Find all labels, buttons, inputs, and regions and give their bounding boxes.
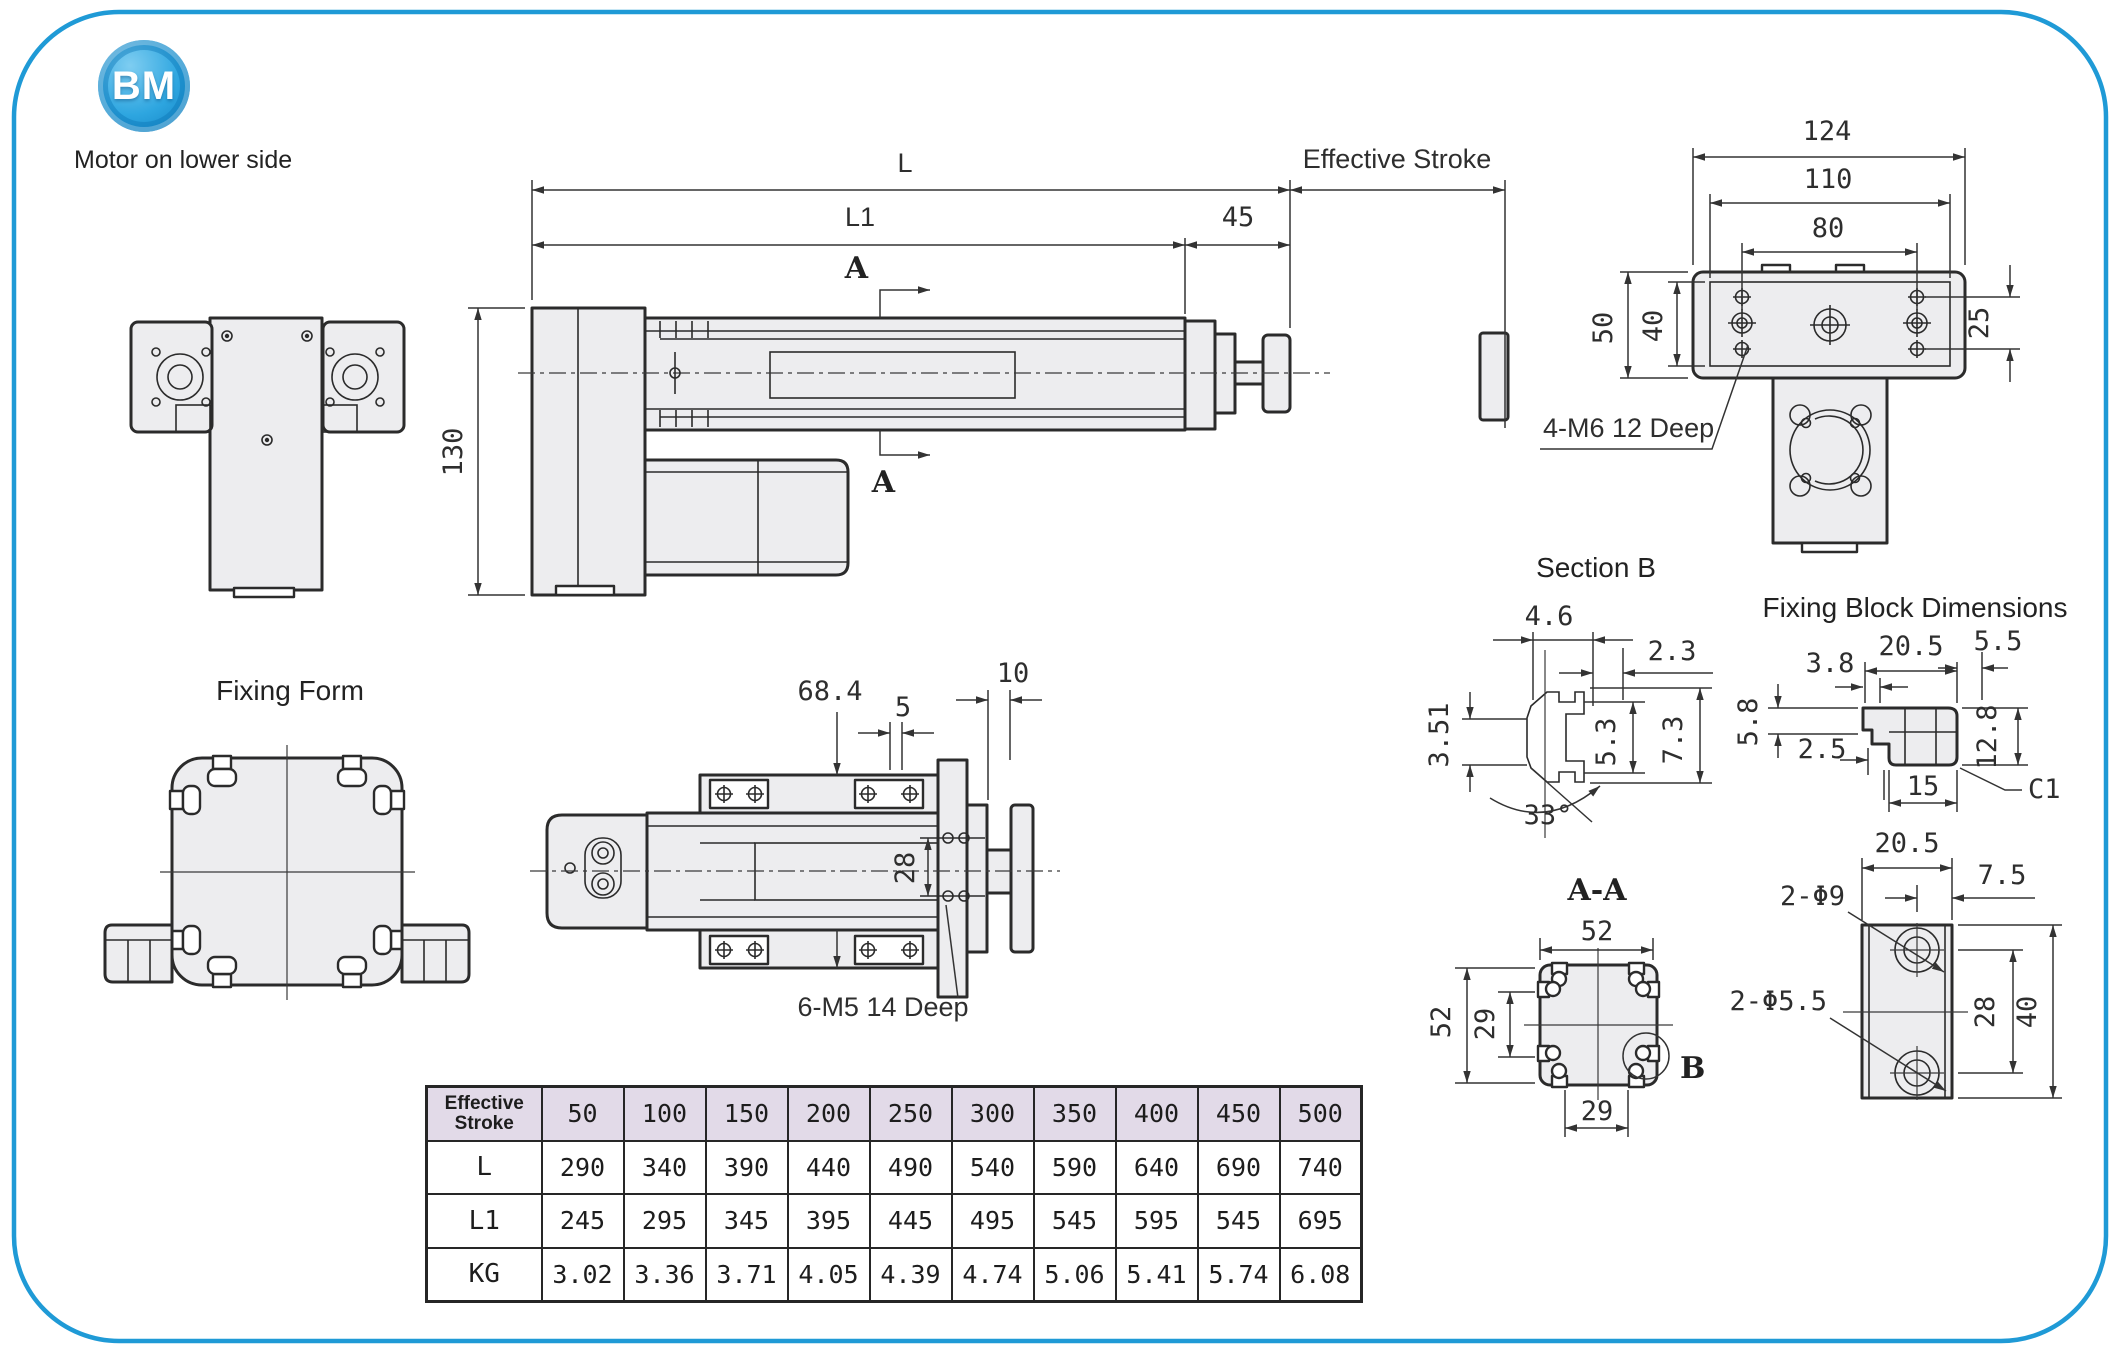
table-cell: 695	[1280, 1194, 1362, 1248]
bm-logo-text: BM	[112, 64, 176, 109]
table-cell: 345	[706, 1194, 788, 1248]
table-header-stroke: 100	[624, 1087, 706, 1141]
table-cell: 245	[542, 1194, 624, 1248]
table-cell: 740	[1280, 1141, 1362, 1194]
table-header-stroke: 150	[706, 1087, 788, 1141]
table-header-stroke: 400	[1116, 1087, 1198, 1141]
front-view-drawing	[131, 318, 404, 597]
dim-3-51: 3.51	[1424, 702, 1455, 767]
effective-stroke-label: Effective Stroke	[1303, 144, 1492, 174]
table-cell: 295	[624, 1194, 706, 1248]
dim-80: 80	[1812, 213, 1845, 244]
table-header-stroke: 50	[542, 1087, 624, 1141]
table-cell: 595	[1116, 1194, 1198, 1248]
fixing-block-profile-drawing: Fixing Block Dimensions 20.5 3.8 5.5 5.8…	[1733, 592, 2068, 812]
table-cell: 490	[870, 1141, 952, 1194]
table-cell: 4.39	[870, 1248, 952, 1302]
dim-7-3: 7.3	[1658, 716, 1689, 765]
table-row-L: L 290 340 390 440 490 540 590 640 690 74…	[427, 1141, 1362, 1194]
end-view-drawing: 124 110 80 50 40 25 4-M6 12 Deep	[1540, 116, 2020, 552]
fixing-block-face-drawing: 20.5 7.5 2-Φ9 2-Φ5.5 28 40	[1729, 828, 2062, 1100]
dim-7-5: 7.5	[1978, 860, 2027, 891]
chamfer-c1: C1	[2028, 774, 2061, 805]
motor-side-caption: Motor on lower side	[74, 146, 374, 175]
table-cell: 395	[788, 1194, 870, 1248]
dim-15: 15	[1907, 771, 1940, 802]
dim-40-face: 40	[2012, 996, 2043, 1029]
fixing-form-section-drawing	[105, 745, 469, 1000]
dim-110: 110	[1804, 164, 1853, 195]
dim-130: 130	[438, 428, 469, 477]
table-cell: 590	[1034, 1141, 1116, 1194]
section-b-title: Section B	[1536, 552, 1656, 583]
dim-20-5-face: 20.5	[1874, 828, 1939, 859]
table-cell: 690	[1198, 1141, 1280, 1194]
holes-2-d9: 2-Φ9	[1780, 881, 1845, 912]
dim-5-3: 5.3	[1591, 718, 1622, 767]
table-cell: 545	[1034, 1194, 1116, 1248]
section-a-bottom-label: A	[871, 465, 896, 500]
table-row-KG: KG 3.02 3.36 3.71 4.05 4.39 4.74 5.06 5.…	[427, 1248, 1362, 1302]
dim-2-5: 2.5	[1798, 734, 1847, 765]
table-cell: 390	[706, 1141, 788, 1194]
dim-45: 45	[1222, 202, 1255, 233]
dim-124: 124	[1803, 116, 1852, 147]
table-cell: 5.41	[1116, 1248, 1198, 1302]
table-cell: 6.08	[1280, 1248, 1362, 1302]
table-header-stroke: 250	[870, 1087, 952, 1141]
dim-L1: L1	[845, 202, 875, 232]
dim-10: 10	[997, 658, 1030, 689]
table-cell: 640	[1116, 1141, 1198, 1194]
row-label: L	[427, 1141, 542, 1194]
dim-28-top-view: 28	[890, 852, 921, 885]
table-cell: 3.02	[542, 1248, 624, 1302]
table-cell: 445	[870, 1194, 952, 1248]
table-cell: 4.74	[952, 1248, 1034, 1302]
dim-4-6: 4.6	[1525, 601, 1574, 632]
dim-29-bottom: 29	[1581, 1096, 1614, 1127]
dim-50: 50	[1588, 312, 1619, 345]
top-view-thread-note: 6-M5 14 Deep	[797, 992, 968, 1022]
holes-2-d5-5: 2-Φ5.5	[1729, 986, 1827, 1017]
table-header-stroke: 450	[1198, 1087, 1280, 1141]
table-cell: 5.74	[1198, 1248, 1280, 1302]
table-cell: 440	[788, 1141, 870, 1194]
stroke-spec-table: Effective Stroke 50 100 150 200 250 300 …	[425, 1085, 1363, 1303]
row-label: L1	[427, 1194, 542, 1248]
table-cell: 4.05	[788, 1248, 870, 1302]
dim-5-5: 5.5	[1974, 626, 2023, 657]
dim-25: 25	[1964, 307, 1995, 340]
dim-29-left: 29	[1470, 1008, 1501, 1041]
end-view-thread-note: 4-M6 12 Deep	[1543, 413, 1714, 443]
dim-L: L	[897, 148, 912, 178]
table-row-L1: L1 245 295 345 395 445 495 545 595 545 6…	[427, 1194, 1362, 1248]
table-cell: 495	[952, 1194, 1034, 1248]
section-aa-drawing: A-A 52 52 29 29 B	[1426, 873, 1705, 1137]
dim-2-3: 2.3	[1648, 636, 1697, 667]
table-header-stroke: 500	[1280, 1087, 1362, 1141]
fixing-block-title: Fixing Block Dimensions	[1763, 592, 2068, 623]
table-cell: 5.06	[1034, 1248, 1116, 1302]
table-header-stroke: 350	[1034, 1087, 1116, 1141]
bm-logo: BM	[98, 40, 190, 132]
table-cell: 290	[542, 1141, 624, 1194]
detail-b-label: B	[1680, 1051, 1705, 1086]
dim-52-left: 52	[1426, 1006, 1457, 1039]
table-cell: 545	[1198, 1194, 1280, 1248]
side-view-drawing: L Effective Stroke L1 45 130 A A	[438, 144, 1508, 595]
dim-68-4: 68.4	[797, 676, 862, 707]
section-a-top-label: A	[844, 251, 869, 286]
dim-3-8: 3.8	[1806, 648, 1855, 679]
dim-52-top: 52	[1581, 916, 1614, 947]
dim-5: 5	[895, 692, 911, 723]
table-cell: 3.36	[624, 1248, 706, 1302]
section-b-drawing: Section B 4.6 2.3 3.51 5.3 7.3 33°	[1424, 552, 1713, 838]
row-label: KG	[427, 1248, 542, 1302]
top-view-drawing: 68.4 5 10 28 6-M5 14 Deep	[530, 658, 1060, 1022]
dim-5-8: 5.8	[1733, 698, 1764, 747]
dim-40: 40	[1638, 310, 1669, 343]
table-header-stroke: 200	[788, 1087, 870, 1141]
dim-20-5-profile: 20.5	[1878, 631, 1943, 662]
table-cell: 3.71	[706, 1248, 788, 1302]
table-header-stroke: 300	[952, 1087, 1034, 1141]
table-cell: 340	[624, 1141, 706, 1194]
fixing-form-label: Fixing Form	[216, 675, 364, 706]
dim-12-8: 12.8	[1972, 704, 2003, 769]
table-cell: 540	[952, 1141, 1034, 1194]
drawing-sheet: Fixing Form	[0, 0, 2123, 1367]
section-aa-title: A-A	[1566, 873, 1627, 908]
dim-angle-33: 33°	[1524, 800, 1573, 831]
table-header-effective-stroke: Effective Stroke	[427, 1087, 542, 1141]
dim-28-face: 28	[1970, 996, 2001, 1029]
